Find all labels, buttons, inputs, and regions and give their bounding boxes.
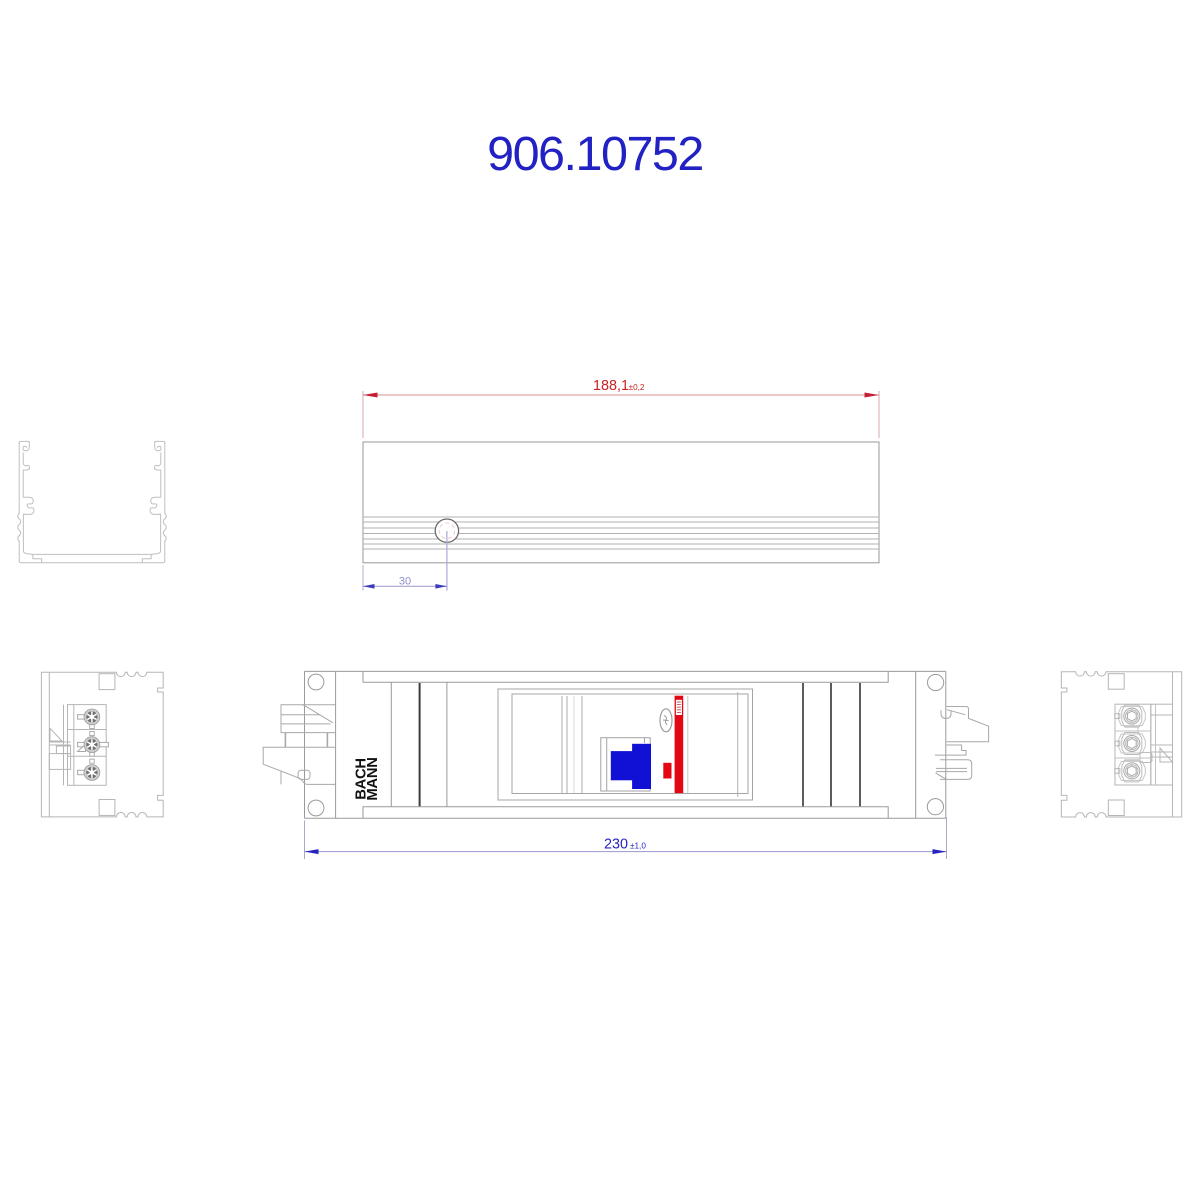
svg-text:MANN: MANN: [365, 757, 381, 800]
svg-text:30: 30: [399, 576, 411, 588]
svg-text:230: 230: [604, 837, 628, 853]
svg-text:188,1: 188,1: [593, 378, 629, 394]
svg-text:±1,0: ±1,0: [630, 842, 646, 851]
svg-text:±0,2: ±0,2: [629, 383, 645, 392]
svg-text:906.10752: 906.10752: [487, 127, 703, 181]
